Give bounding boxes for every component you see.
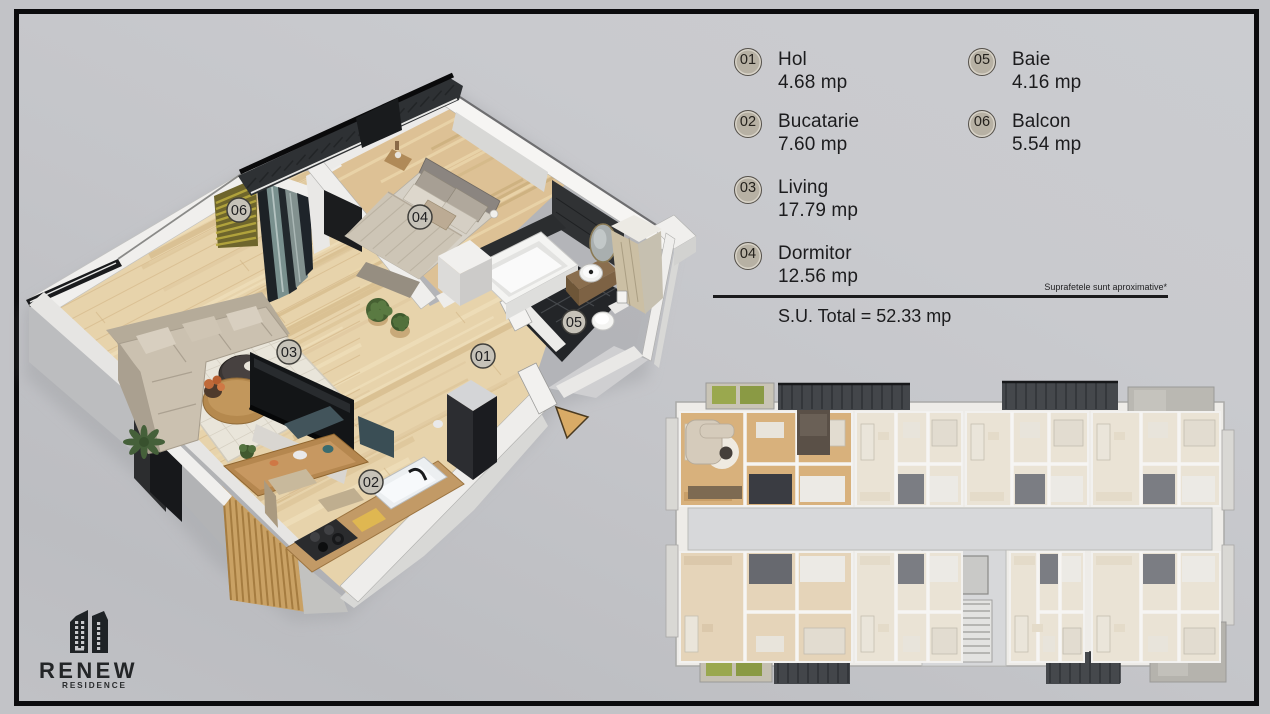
svg-text:02: 02 [363,475,379,491]
svg-text:01: 01 [475,349,491,365]
svg-text:06: 06 [231,203,247,219]
svg-text:04: 04 [412,210,428,226]
svg-text:05: 05 [566,315,582,331]
svg-text:03: 03 [281,345,297,361]
